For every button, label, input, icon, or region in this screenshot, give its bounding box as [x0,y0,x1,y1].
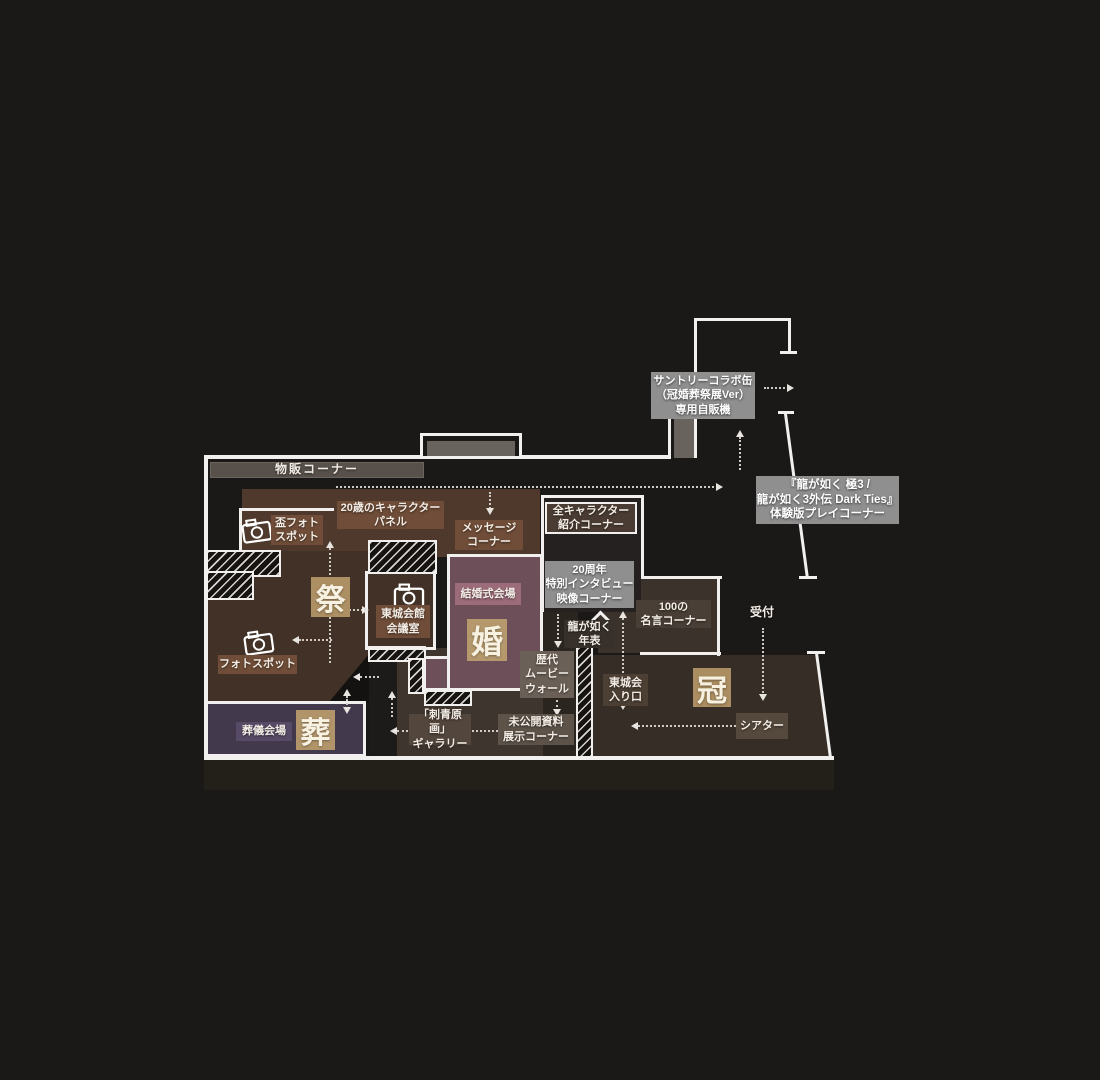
funeral-hall-label: 葬儀会場 [236,722,292,741]
wedding-hall-label: 結婚式会場 [455,583,521,605]
arrow-exit-right [764,387,789,389]
arrowhead [736,430,744,437]
zone-coronation: 冠 [693,668,731,707]
zone-funeral: 葬 [296,710,335,750]
wall-corridor-cap [780,351,797,354]
panel-20th-label: 20歳のキャラクター パネル [337,501,444,529]
sakazuki-photo-label: 盃フォト スポット [271,515,323,545]
arrow-to-photospot [299,639,332,641]
wall-bottom [204,756,834,760]
suntory-vending-label: サントリーコラボ缶 （冠婚葬祭展Ver） 専用自販機 [651,372,755,419]
wall-corridor-right [788,318,791,353]
hatch-central-strip [576,646,593,759]
unreleased-materials-label: 未公開資料 展示コーナー [498,714,574,745]
arrow-corridor-up [391,698,393,717]
arrow-wedge-left [360,676,379,678]
dots-tattoo-unreleased [469,730,501,732]
wall-meigen-top [641,576,722,579]
all-characters-label: 全キャラクター 紹介コーナー [545,502,637,534]
arrowhead [631,722,638,730]
floor-map: 物販コーナー サントリーコラボ缶 （冠婚葬祭展Ver） 専用自販機 『龍が如く … [0,0,1100,1080]
hatch-wedding-left [408,658,424,694]
arrowhead [343,707,351,714]
meigen-100-label: 100の 名言コーナー [636,600,711,628]
arrowhead [343,689,351,696]
arrowhead [759,694,767,701]
arrow-to-message [489,492,491,509]
hatch-wedding-bottom [424,690,472,706]
arrowhead [390,727,397,735]
arrowhead [787,384,794,392]
arrowhead [362,606,369,614]
reception-label: 受付 [745,605,779,621]
message-corner-label: メッセージ コーナー [455,520,523,550]
zone-wedding: 婚 [467,619,507,661]
wall-corridor-top [694,318,791,321]
demo-play-corner-label: 『龍が如く 極3 / 龍が如く3外伝 Dark Ties』 体験版プレイコーナー [756,476,899,524]
arrowhead [353,673,360,681]
arrowhead [716,483,723,491]
arrowhead [619,611,627,618]
arrowhead [326,541,334,548]
interview-20th-label: 20周年 特別インタビュー 映像コーナー [545,561,634,608]
arrowhead [554,641,562,648]
wall-meigen-right [717,576,720,656]
arrow-vending-up [739,437,741,470]
photo-spot-label: フォトスポット [218,655,297,674]
wall-meeting-bottom [365,647,436,650]
tojo-entrance-label: 東城会 入り口 [603,674,648,706]
floor-apron [204,760,834,790]
arrowhead [486,508,494,515]
tattoo-gallery-label: 「刺青原画」 ギャラリー [409,714,471,745]
hatch-above-meeting [368,540,437,574]
merch-corner-bar: 物販コーナー [210,462,424,478]
wall-introroom-right [641,495,644,579]
wall-meigen-bottom [640,652,721,655]
theater-label: シアター [736,713,788,739]
wall-slant-cap-bottom [799,576,817,579]
wall-left [204,455,208,760]
wall-introroom-top [541,495,644,498]
hatch-left-bottom [205,571,254,600]
zone-festival: 祭 [311,577,350,617]
arrow-theater-left [638,725,736,727]
movie-wall-label: 歴代 ムービー ウォール [520,651,574,698]
wall-sakazuki-top [239,508,334,511]
arrowhead [388,691,396,698]
wall-introroom-left [541,495,544,612]
arrow-merch-flow [336,486,718,488]
camera-icon [240,516,274,550]
timeline-label: 龍が如く 年表 [564,620,615,648]
arrowhead [292,636,299,644]
wall-corridor-inner [668,418,671,458]
arrow-interview-down [557,614,559,643]
arrow-reception-down [762,628,764,696]
wall-meeting-right [433,571,436,650]
bump-fill [427,441,515,456]
tojo-meeting-label: 東城会館 会議室 [376,605,430,638]
